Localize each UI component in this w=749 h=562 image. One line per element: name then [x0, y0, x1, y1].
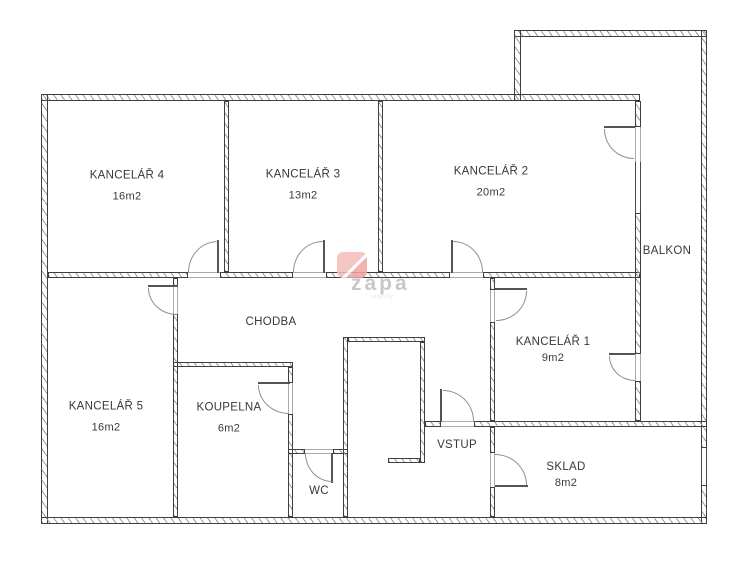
wall-kancelar3-kancelar2 [378, 101, 383, 272]
room-label-wc: WC [309, 485, 329, 497]
wall-koupelna-right-b [288, 414, 293, 517]
room-label-sklad: SKLAD 8m2 [546, 461, 585, 489]
wall-balcony-inner-a [635, 101, 641, 127]
door-arc-kancelar2 [453, 241, 483, 272]
door-arc-sklad [495, 454, 527, 485]
wall-kancelar5-right-b [173, 314, 178, 517]
wall-shaft-stub [388, 458, 420, 463]
wall-corridor-top-a [48, 272, 188, 278]
door-leaf-kancelar1 [495, 288, 527, 290]
window-kancelar2-balcony [635, 162, 641, 213]
door-leaf-kancelar5 [148, 285, 178, 287]
wall-wc-top-a [288, 449, 305, 454]
door-arc-vstup [443, 390, 474, 421]
door-arc-koupelna [258, 385, 289, 414]
room-name: KOUPELNA [196, 402, 261, 414]
wall-vstup-top-a [425, 421, 441, 427]
wall-corridor-top-b [220, 272, 293, 278]
wall-vstup-sklad-a [490, 427, 495, 453]
room-name: BALKON [643, 245, 691, 257]
door-arc-kancelar1-balcony [609, 356, 635, 381]
room-name: SKLAD [546, 461, 585, 473]
floorplan-image: KANCELÁŘ 4 16m2 KANCELÁŘ 3 13m2 KANCELÁŘ… [0, 0, 749, 562]
room-name: KANCELÁŘ 5 [69, 401, 144, 413]
wall-vstup-sklad-b [490, 487, 495, 517]
room-label-kancelar1: KANCELÁŘ 1 9m2 [516, 336, 591, 364]
opening-kancelar1-door [490, 290, 495, 322]
wall-sklad-top [474, 421, 707, 427]
door-leaf-koupelna [258, 382, 290, 384]
room-label-kancelar3: KANCELÁŘ 3 13m2 [266, 169, 341, 202]
room-area: 20m2 [454, 187, 529, 199]
door-leaf-vstup [440, 389, 442, 422]
room-area: 13m2 [266, 190, 341, 202]
opening-vstup-door [441, 421, 474, 427]
wall-balcony-top [514, 30, 707, 37]
watermark-subtext: reality [364, 294, 400, 300]
door-arc-kancelar1 [496, 291, 527, 321]
room-area: 8m2 [546, 477, 585, 489]
wall-main-bottom [41, 517, 707, 524]
wall-corridor-top-c [326, 272, 450, 278]
room-label-koupelna: KOUPELNA 6m2 [196, 402, 261, 435]
wall-shaft-top [348, 337, 425, 342]
wall-balcony-left-upper [514, 30, 521, 101]
door-leaf-sklad [495, 485, 528, 487]
door-arc-kancelar5 [148, 288, 177, 315]
wall-main-left [41, 94, 48, 524]
opening-kancelar4-door [188, 272, 220, 278]
wall-shaft-right [420, 342, 425, 463]
room-label-kancelar5: KANCELÁŘ 5 16m2 [69, 401, 144, 434]
room-name: KANCELÁŘ 3 [266, 169, 341, 181]
opening-kancelar2-door [450, 272, 483, 278]
room-label-kancelar2: KANCELÁŘ 2 20m2 [454, 166, 529, 199]
wall-kancelar1-left-b [490, 322, 495, 421]
window-sklad-right [701, 448, 707, 485]
room-area: 6m2 [196, 423, 261, 435]
wall-balcony-inner-c [635, 381, 641, 421]
room-name: KANCELÁŘ 2 [454, 166, 529, 178]
wall-kancelar4-kancelar3 [224, 101, 229, 272]
opening-kancelar2-balcony-door [635, 127, 641, 162]
room-name: KANCELÁŘ 4 [90, 170, 165, 182]
room-area: 16m2 [69, 422, 144, 434]
wall-balcony-inner-b [635, 213, 641, 354]
wall-main-top [41, 94, 640, 101]
room-area: 9m2 [516, 352, 591, 364]
wall-shaft-left [343, 337, 348, 517]
room-label-balkon: BALKON [643, 245, 691, 257]
room-name: KANCELÁŘ 1 [516, 336, 591, 348]
room-area: 16m2 [90, 191, 165, 203]
room-name: CHODBA [245, 316, 296, 328]
opening-kancelar1-balcony-door [635, 354, 641, 381]
opening-kancelar3-door [293, 272, 326, 278]
door-leaf-kancelar1-balcony [609, 353, 635, 355]
door-leaf-kancelar3 [323, 240, 325, 273]
wall-corridor-top-d [483, 272, 640, 278]
door-leaf-kancelar2-balcony [604, 126, 635, 128]
door-arc-kancelar3 [293, 241, 323, 272]
wall-balcony-right-upper [701, 30, 707, 448]
room-label-vstup: VSTUP [437, 439, 477, 451]
room-label-chodba: CHODBA [245, 316, 296, 328]
wall-koupelna-top [173, 362, 293, 367]
door-arc-wc [305, 453, 332, 482]
door-arc-kancelar2-balcony [604, 129, 634, 159]
room-name: VSTUP [437, 439, 477, 451]
room-name: WC [309, 485, 329, 497]
door-arc-kancelar4 [188, 241, 218, 272]
wall-koupelna-right-a [288, 367, 293, 383]
room-label-kancelar4: KANCELÁŘ 4 16m2 [90, 170, 165, 203]
